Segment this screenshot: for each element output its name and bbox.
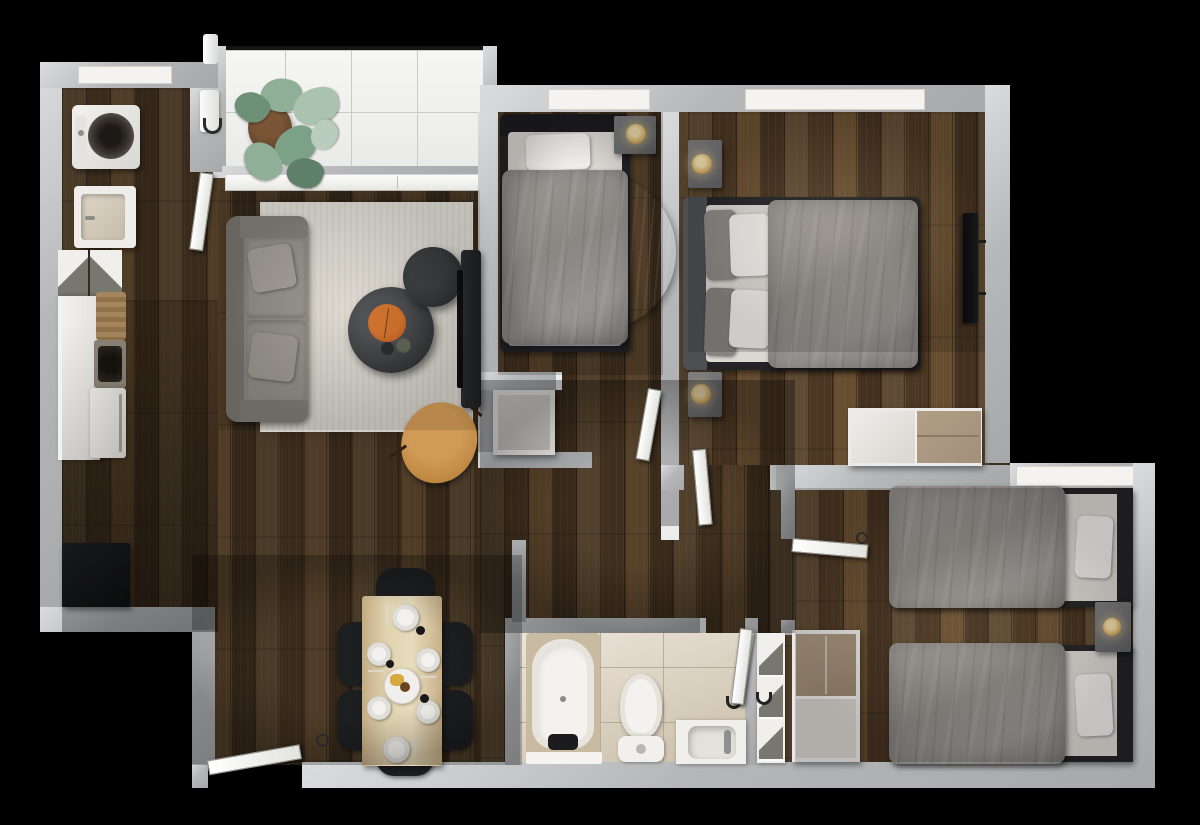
twin-closet-divider [825, 636, 827, 694]
tv-panel [457, 270, 463, 388]
bed-pillow [729, 289, 772, 349]
entry-door-handle [316, 734, 329, 747]
wardrobe-shelf-line [917, 435, 979, 437]
table-bowl [381, 342, 394, 355]
sofa-armrest [240, 400, 308, 422]
bedroom-1 [498, 112, 663, 375]
balcony-railing [221, 46, 497, 82]
sofa-armrest [240, 216, 308, 238]
cutlery [414, 738, 416, 756]
vanity-faucet [724, 730, 731, 754]
cup [420, 694, 429, 703]
sofa-backrest [226, 216, 244, 422]
cutlery [386, 606, 388, 626]
kitchen [55, 88, 218, 632]
tv-bracket [978, 292, 986, 295]
wardrobe-left-section [851, 411, 915, 463]
bathtub-faucet [548, 734, 578, 750]
twin-closet [792, 630, 860, 762]
twin-bedroom [757, 488, 1133, 762]
hall-cabinet [493, 390, 555, 455]
wall-divider-endcap [661, 526, 679, 540]
kitchen-sink-basin [98, 346, 122, 382]
bathroom [520, 618, 758, 765]
dining-chair-right-1 [437, 622, 473, 686]
wall-bottom-left-segment [192, 762, 208, 788]
sideboard [62, 543, 130, 607]
sofa [226, 216, 308, 422]
tv-bracket [978, 240, 986, 243]
cutlery [420, 676, 436, 678]
balcony [213, 40, 497, 190]
laundry-faucet [85, 216, 95, 220]
platter-food [400, 682, 410, 692]
wall-bedroom2-right [985, 85, 1010, 463]
bedroom-2 [679, 112, 985, 465]
sliding-door-divider [397, 176, 398, 189]
wall-left-lower-vertical [192, 630, 215, 764]
table-lamp [692, 154, 712, 174]
wardrobe [848, 408, 982, 466]
bath-mat [526, 752, 602, 764]
bed-duvet [502, 170, 628, 344]
tv-console [461, 250, 481, 408]
outside-bottom [0, 788, 1200, 825]
bathtub [532, 639, 594, 749]
wall-bedroom2-bottom-left [661, 465, 684, 490]
table-lamp [691, 384, 711, 404]
bedroom-2-window [745, 89, 925, 110]
vent-pipe [203, 34, 218, 64]
twin-door-handle [856, 532, 868, 544]
kitchen-window [78, 66, 172, 84]
bed-pillow [729, 213, 771, 276]
washer-control-panel [75, 116, 86, 156]
outside-right-upper [1010, 85, 1200, 463]
wall-bathroom-left [505, 618, 520, 765]
bathtub-drain [560, 696, 566, 702]
oven-handle [119, 394, 122, 452]
bedroom-1-window [548, 89, 650, 110]
table-lamp [626, 124, 646, 144]
toilet-flush-button [636, 744, 646, 754]
twin-bed-upper-duvet [889, 486, 1065, 608]
twin-bed-lower-duvet [889, 643, 1065, 764]
twin-bed-upper-pillow [1074, 515, 1113, 579]
dining-chair-right-2 [437, 690, 473, 750]
cutting-board [96, 292, 126, 340]
wall-tv [963, 213, 978, 323]
plate [416, 700, 440, 724]
bed-duvet [768, 200, 918, 368]
twin-bedroom-window [1016, 466, 1136, 486]
plate [416, 648, 440, 672]
twin-table-lamp [1103, 618, 1121, 636]
cup [386, 660, 394, 668]
linen-shelf-cell [759, 635, 783, 677]
table-bowl [396, 338, 411, 353]
sofa-pillow [247, 243, 298, 294]
washing-machine-drum [88, 113, 134, 159]
living-room [218, 190, 480, 540]
twin-bed-lower-pillow [1074, 673, 1113, 737]
floor-plan-render [0, 0, 1200, 825]
cutlery [368, 670, 384, 672]
door-jamb [770, 465, 776, 490]
open-cabinet-cell [90, 250, 122, 298]
cup [416, 626, 425, 635]
sofa-pillow [247, 331, 298, 382]
open-cabinet-cell [58, 250, 88, 298]
outside-right-lower [1155, 463, 1200, 825]
toilet-bowl [620, 674, 662, 738]
wall-twin-right [1133, 463, 1155, 788]
wall-hall-stub-vertical [512, 540, 526, 622]
dining-area [330, 560, 480, 782]
wardrobe-right-section [915, 411, 981, 463]
washer-dial [78, 130, 84, 136]
linen-shelf-cell [759, 719, 783, 761]
ottoman-table [403, 247, 463, 307]
bed-pillow [525, 133, 590, 171]
plate [367, 696, 391, 720]
plate [392, 604, 419, 631]
plate [383, 736, 410, 763]
